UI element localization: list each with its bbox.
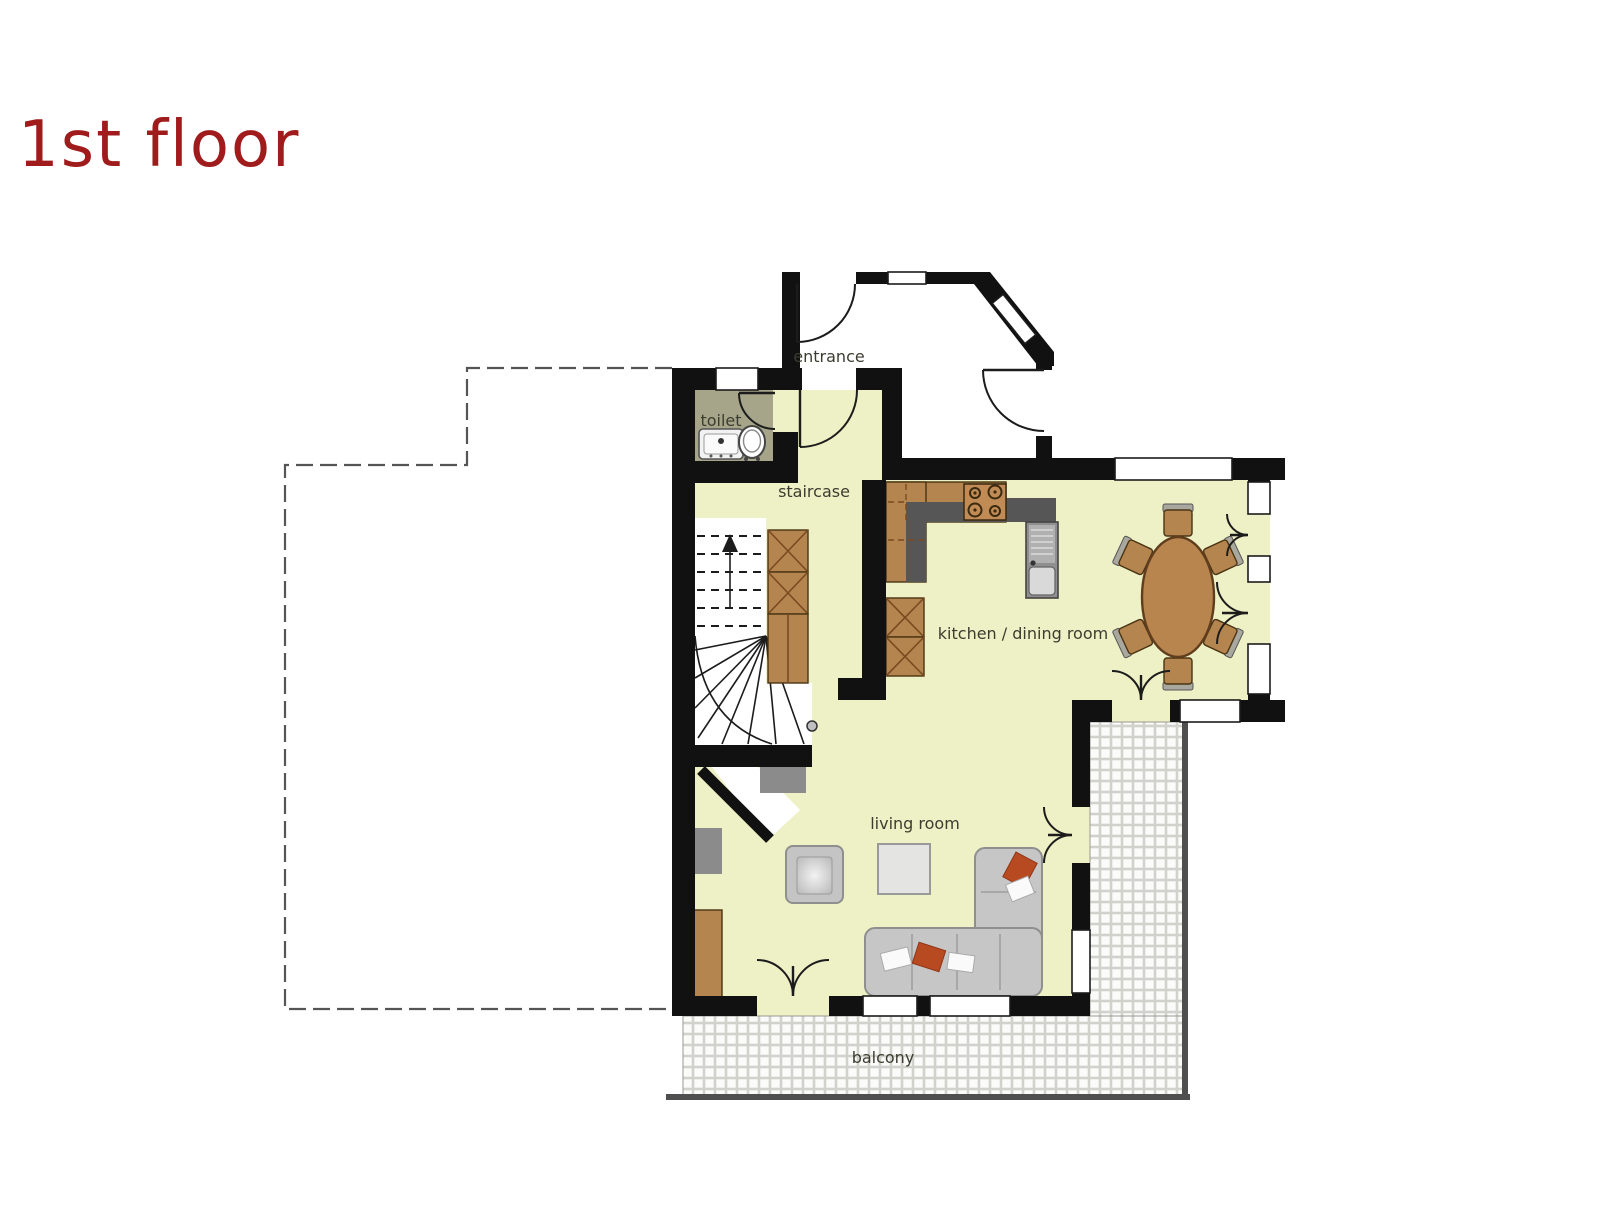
label-living-room: living room bbox=[870, 814, 960, 833]
under-stair-gray-side bbox=[695, 828, 722, 874]
label-kitchen-dining: kitchen / dining room bbox=[938, 624, 1108, 643]
label-entrance: entrance bbox=[793, 347, 864, 366]
window bbox=[1072, 930, 1090, 993]
window bbox=[1115, 458, 1232, 480]
window bbox=[863, 996, 917, 1016]
stair-wardrobe bbox=[768, 530, 808, 683]
stove bbox=[964, 484, 1006, 520]
balcony-railing-bottom bbox=[666, 1094, 1190, 1100]
window bbox=[888, 272, 926, 284]
dining-chair bbox=[1163, 504, 1193, 536]
under-stair-gray-block bbox=[760, 767, 806, 793]
window bbox=[930, 996, 1010, 1016]
window bbox=[1248, 482, 1270, 514]
label-staircase: staircase bbox=[778, 482, 850, 501]
dining-table bbox=[1142, 537, 1214, 657]
dining-chair bbox=[1163, 658, 1193, 690]
kitchen-counter-dark-right bbox=[1006, 498, 1056, 522]
kitchen-tall-cabinets bbox=[886, 598, 924, 676]
washbasin-faucet bbox=[718, 438, 724, 444]
coffee-table bbox=[878, 844, 930, 894]
lower-floor-outline bbox=[285, 368, 672, 1009]
toilet-fixtures bbox=[699, 426, 765, 461]
label-toilet: toilet bbox=[700, 411, 741, 430]
window bbox=[1248, 556, 1270, 582]
label-balcony: balcony bbox=[852, 1048, 915, 1067]
window bbox=[716, 368, 758, 390]
terrace-tiles-right bbox=[1090, 722, 1185, 1016]
stair-newel-post bbox=[807, 721, 817, 731]
balcony-tiles-bottom bbox=[683, 1016, 1185, 1096]
floor-plan-canvas: entrance toilet staircase kitchen / dini… bbox=[0, 0, 1606, 1205]
window bbox=[1180, 700, 1240, 722]
armchair bbox=[786, 846, 843, 903]
living-room-cabinet bbox=[694, 910, 722, 998]
balcony-railing-right bbox=[1182, 722, 1188, 1100]
window bbox=[1248, 644, 1270, 694]
kitchen-sink bbox=[1026, 522, 1058, 598]
